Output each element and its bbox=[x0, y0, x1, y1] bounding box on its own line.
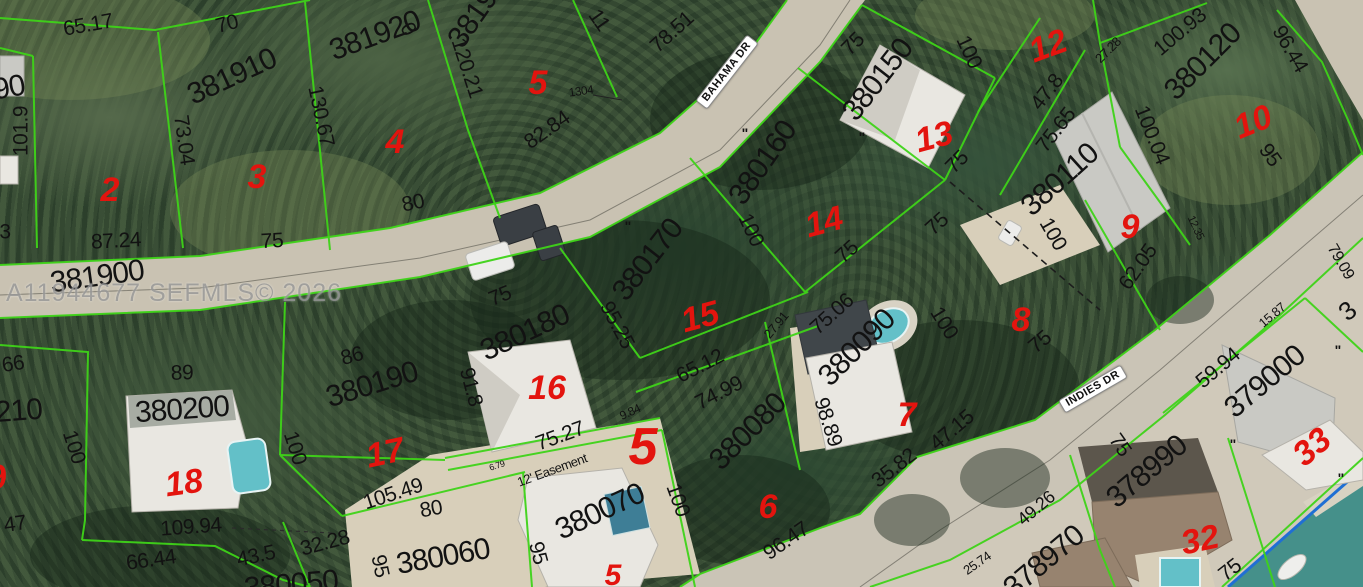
road-top-right-corner bbox=[1295, 0, 1363, 120]
aerial-parcel-map[interactable]: 65.177087.24758082.84120.2178.5113047510… bbox=[0, 0, 1363, 587]
pool-380070 bbox=[604, 487, 650, 536]
pool-380200 bbox=[227, 438, 272, 495]
pool-378990 bbox=[1160, 558, 1200, 587]
house-378990-upper bbox=[1078, 438, 1218, 502]
mls-watermark: A11944677 SEFMLS© 2026 bbox=[6, 279, 342, 308]
